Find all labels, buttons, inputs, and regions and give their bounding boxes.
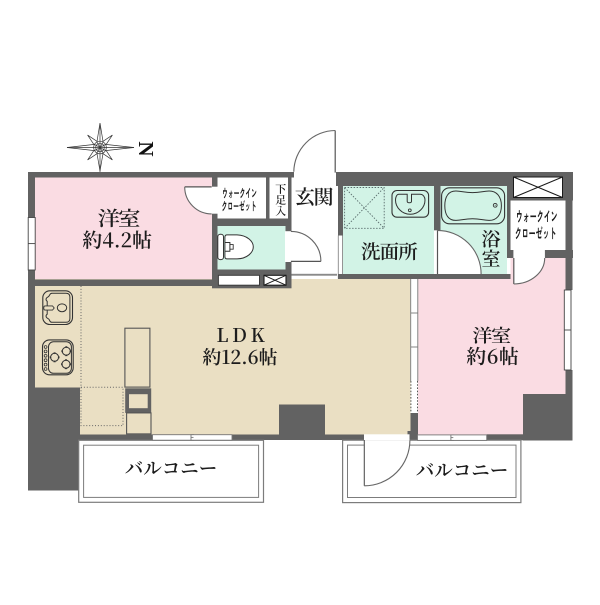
svg-text:N: N [134,141,158,156]
